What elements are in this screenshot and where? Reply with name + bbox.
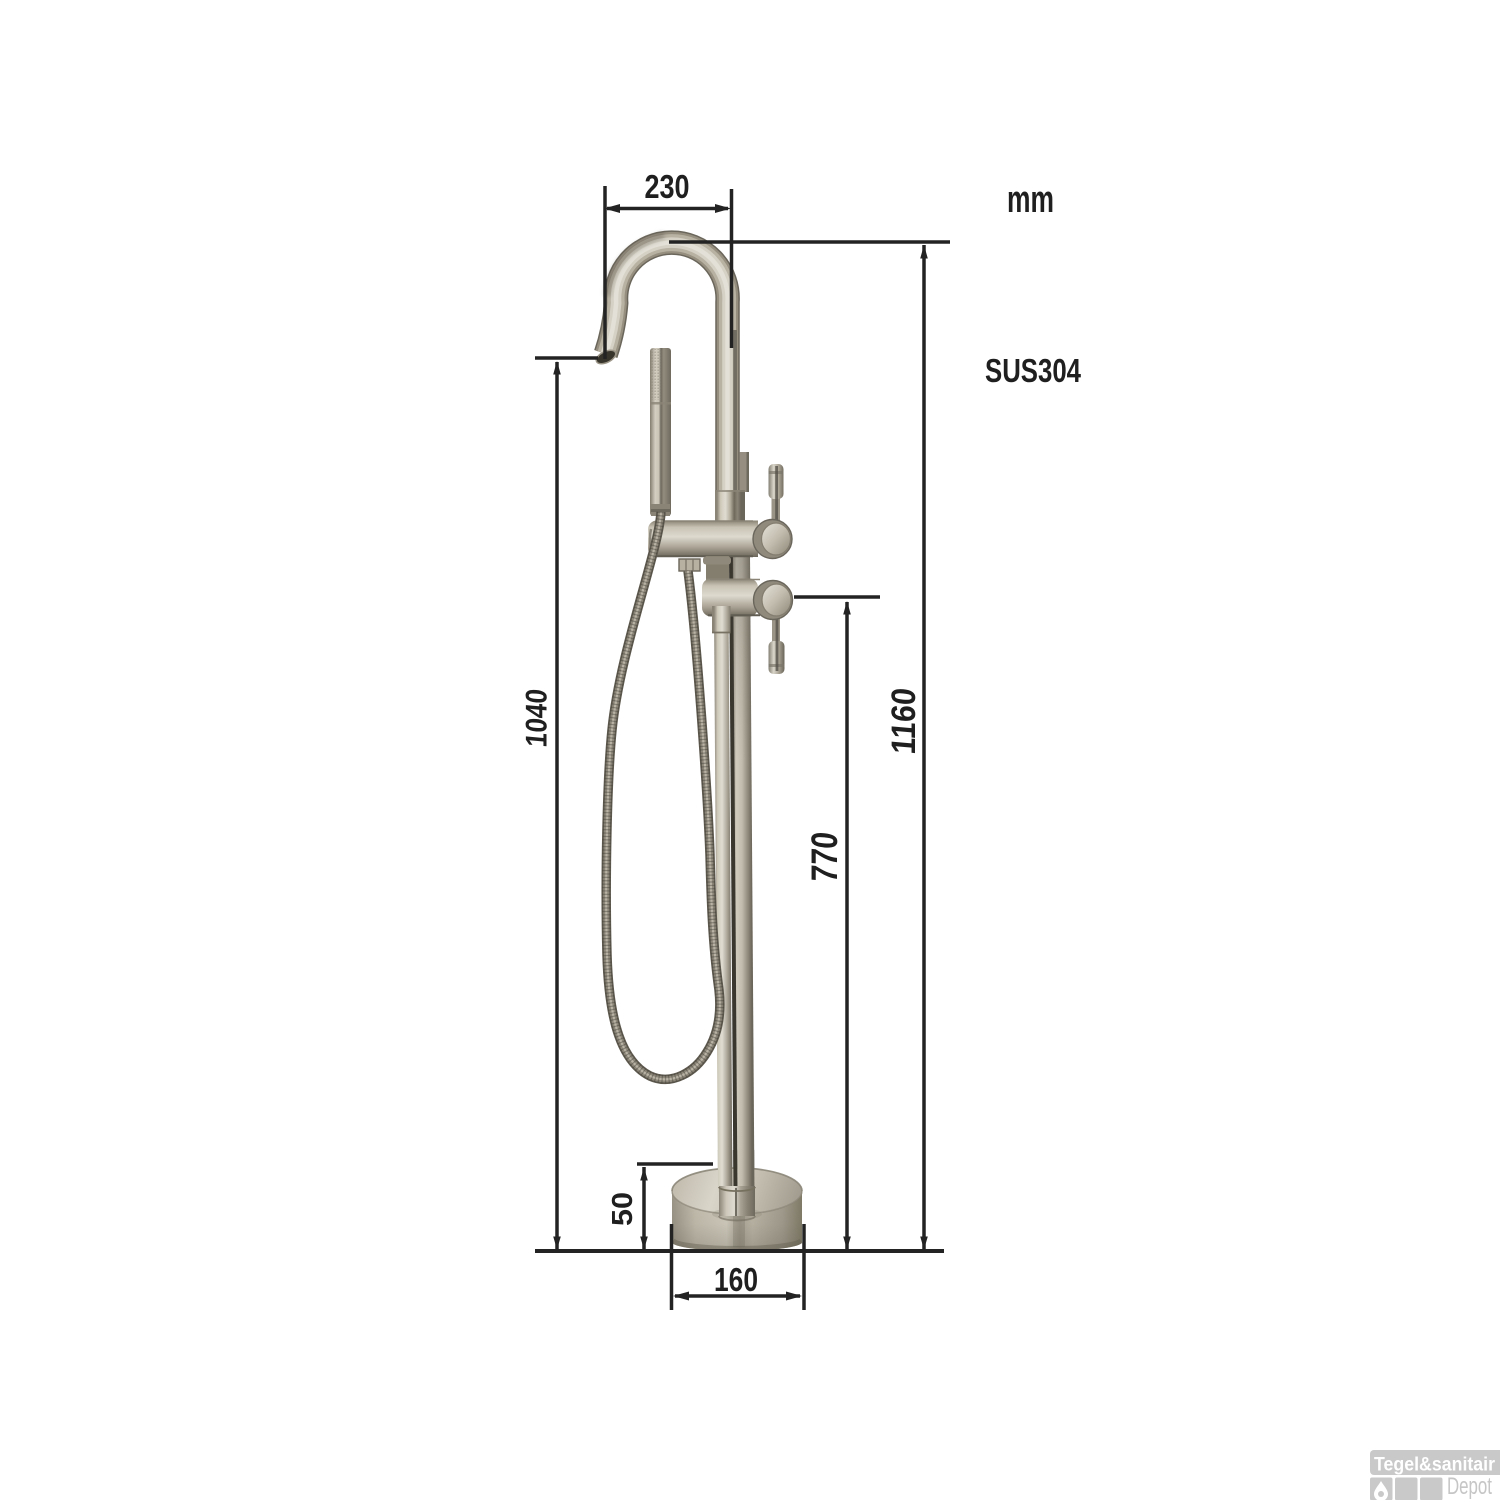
svg-text:mm: mm <box>1007 179 1054 221</box>
svg-text:1160: 1160 <box>885 686 923 755</box>
svg-text:770: 770 <box>803 830 845 884</box>
svg-text:Depot: Depot <box>1447 1473 1492 1500</box>
svg-text:SUS304: SUS304 <box>985 352 1081 389</box>
svg-text:1040: 1040 <box>521 688 554 749</box>
svg-text:230: 230 <box>645 168 690 205</box>
svg-text:50: 50 <box>607 1192 639 1226</box>
svg-text:160: 160 <box>714 1261 758 1298</box>
